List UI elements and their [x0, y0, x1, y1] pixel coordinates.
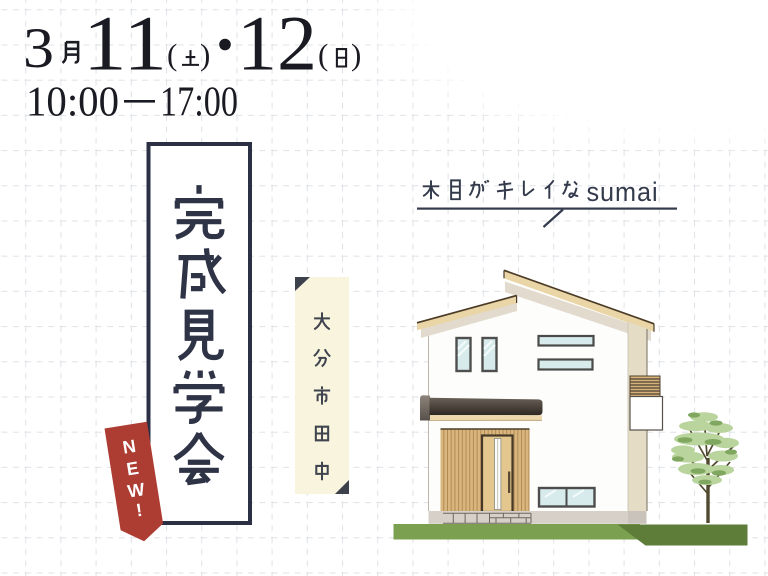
svg-text:): ) — [200, 37, 210, 72]
svg-text:): ) — [351, 37, 361, 72]
svg-text:12: 12 — [237, 0, 317, 87]
svg-text:11: 11 — [83, 0, 167, 87]
svg-text:17:00: 17:00 — [160, 80, 238, 126]
svg-text:W: W — [126, 479, 146, 501]
svg-text:(: ( — [167, 37, 177, 72]
svg-text:3: 3 — [23, 17, 54, 80]
svg-text:(: ( — [318, 37, 328, 72]
svg-text:sumai: sumai — [587, 177, 659, 207]
svg-text:10:00: 10:00 — [26, 80, 119, 126]
